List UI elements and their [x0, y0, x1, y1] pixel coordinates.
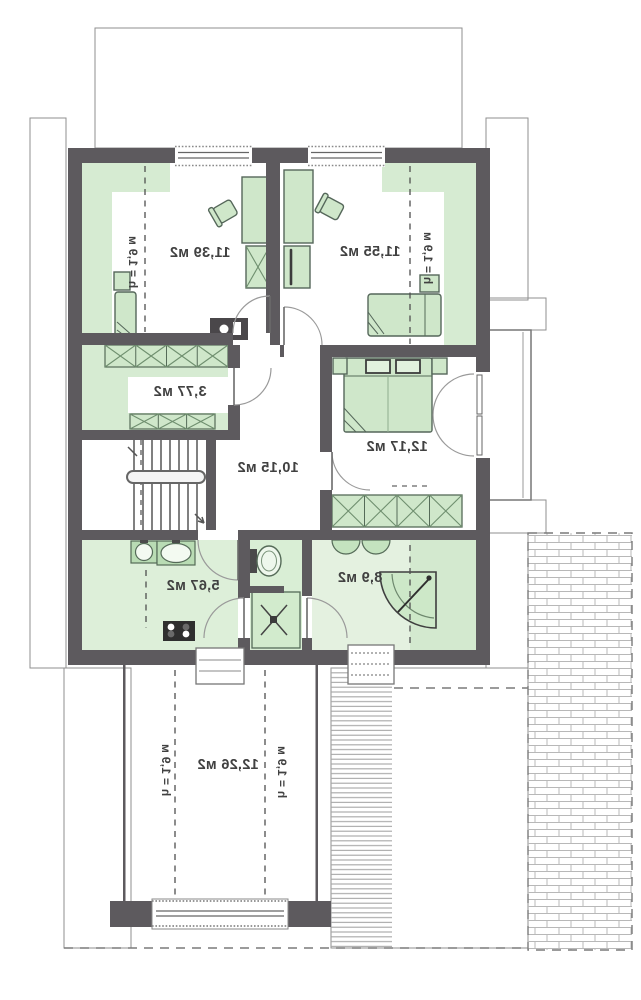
height-note-top-left: h = 1,9 м — [126, 236, 140, 289]
height-note-attic-right: h = 1,9 м — [275, 746, 289, 799]
double-bed-icon — [344, 358, 432, 432]
wall-right-upper — [476, 148, 490, 374]
pillow-icon — [366, 360, 390, 373]
height-note-attic-left: h = 1,9 м — [159, 744, 173, 797]
room-label-wardrobe: 3,77 м2 — [153, 384, 206, 400]
door-wardrobe — [234, 368, 271, 405]
roof-wing-right-inner — [331, 668, 392, 948]
window-top-right — [308, 145, 385, 167]
shower-icon — [252, 592, 300, 648]
door-bedroom — [332, 452, 370, 490]
cabinet-icon — [284, 246, 310, 288]
wall-partition-top-rooms — [266, 163, 280, 333]
closet-row-wardrobe-top — [105, 345, 228, 367]
pillow-icon — [396, 360, 420, 373]
chair-icon — [314, 193, 345, 223]
stairs-handrail — [127, 471, 205, 483]
bed-icon — [368, 294, 441, 336]
room-label-top-right: 11,55 м2 — [340, 244, 401, 260]
room-label-bathroom: 8,9 м2 — [338, 570, 383, 586]
balcony — [488, 330, 531, 500]
window-top-left — [175, 145, 252, 167]
window-bottom-wall-block — [196, 648, 244, 684]
wing-wall-left — [123, 665, 126, 901]
desk-icon — [284, 170, 313, 243]
wing-wall-right — [316, 665, 319, 901]
bed-icon — [115, 292, 136, 338]
door-top-right-room — [284, 307, 322, 345]
roof-top — [95, 28, 462, 148]
roof-left-strip — [30, 118, 66, 668]
low-band-top-left-corner — [82, 163, 170, 192]
room-label-bedroom: 12,17 м2 — [366, 439, 428, 455]
roof-right-strip-upper — [486, 118, 528, 300]
nightstand-icon — [432, 358, 447, 374]
wall-bottom — [68, 650, 490, 665]
stairs — [82, 440, 206, 530]
room-label-utility: 5,67 м2 — [166, 578, 219, 594]
floor-plan-svg: 11,39 м2 11,55 м2 3,77 м2 10,15 м2 12,17… — [0, 0, 641, 1000]
closet-row-wardrobe-bottom — [130, 414, 215, 429]
desk-icon — [242, 177, 268, 243]
wall-left — [68, 148, 82, 665]
window-wing-bottom — [152, 899, 288, 929]
balcony-roof-cap-top — [486, 298, 546, 330]
roof-right-strip-lower — [486, 533, 528, 668]
chair-icon — [208, 197, 239, 227]
room-label-hall: 10,15 м2 — [237, 460, 299, 476]
low-band-top-right-corner — [382, 163, 476, 192]
door-balcony-french — [433, 372, 492, 458]
room-label-attic: 12,26 м2 — [197, 757, 259, 773]
wall-right-lower — [476, 456, 490, 665]
height-note-top-right: h = 1,9 м — [421, 232, 435, 285]
vent-block — [348, 645, 394, 684]
nightstand-icon — [333, 358, 347, 374]
balcony-roof-cap-bottom — [486, 500, 546, 533]
toilet-icon — [250, 546, 281, 576]
stove-icon — [163, 621, 195, 641]
closet-row-bedroom — [332, 495, 462, 527]
room-label-top-left: 11,39 м2 — [170, 245, 231, 261]
floor-plan: 11,39 м2 11,55 м2 3,77 м2 10,15 м2 12,17… — [0, 0, 641, 1000]
sink-icon — [131, 538, 157, 563]
roof-far-right-dashed — [528, 533, 632, 950]
basin-icon — [157, 538, 195, 565]
